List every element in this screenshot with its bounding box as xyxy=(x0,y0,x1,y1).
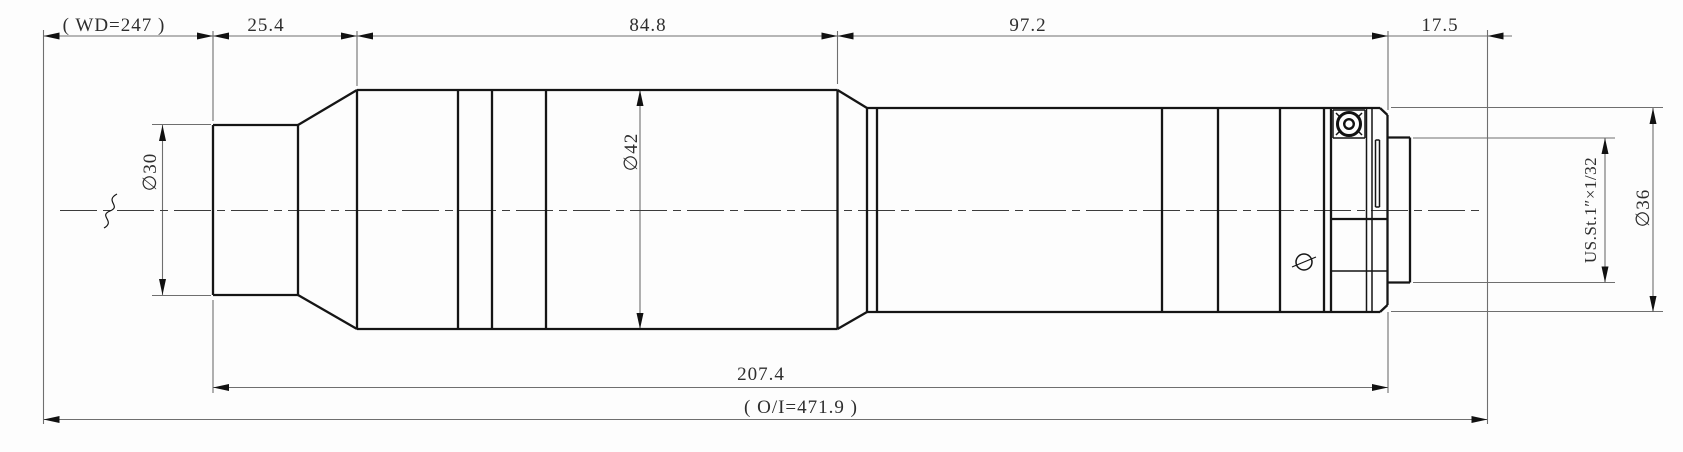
main-body xyxy=(357,90,867,329)
flange-to-image-label: 17.5 xyxy=(1421,15,1458,36)
mid-length-label: 84.8 xyxy=(629,15,666,36)
body-diameter-label: ∅42 xyxy=(621,133,642,172)
object-to-image-label: ( O/I=471.9 ) xyxy=(744,397,858,418)
technical-drawing-page: ( WD=247 ) 25.4 84.8 97.2 17.5 207.4 ( O… xyxy=(0,0,1683,452)
dimension-arrowheads xyxy=(44,33,1657,424)
rear-length-label: 97.2 xyxy=(1009,15,1046,36)
lock-screw-icon xyxy=(1338,113,1361,136)
lens-outline xyxy=(213,90,1410,329)
mechanical-length-label: 207.4 xyxy=(737,364,785,385)
dimension-labels: ( WD=247 ) 25.4 84.8 97.2 17.5 207.4 ( O… xyxy=(63,15,1654,418)
front-barrel xyxy=(213,90,357,329)
dimension-lines xyxy=(44,36,1654,420)
rear-diameter-label: ∅36 xyxy=(1633,189,1654,228)
front-diameter-label: ∅30 xyxy=(140,153,161,192)
front-length-label: 25.4 xyxy=(247,15,284,36)
extension-lines xyxy=(44,30,1664,424)
set-screw xyxy=(1292,254,1316,270)
drawing-canvas: ( WD=247 ) 25.4 84.8 97.2 17.5 207.4 ( O… xyxy=(0,0,1683,452)
lock-screw-center-icon xyxy=(1344,119,1354,129)
working-distance-label: ( WD=247 ) xyxy=(63,15,166,36)
centerline xyxy=(60,194,1483,228)
mount-thread-label: US.St.1″×1/32 xyxy=(1581,157,1600,263)
